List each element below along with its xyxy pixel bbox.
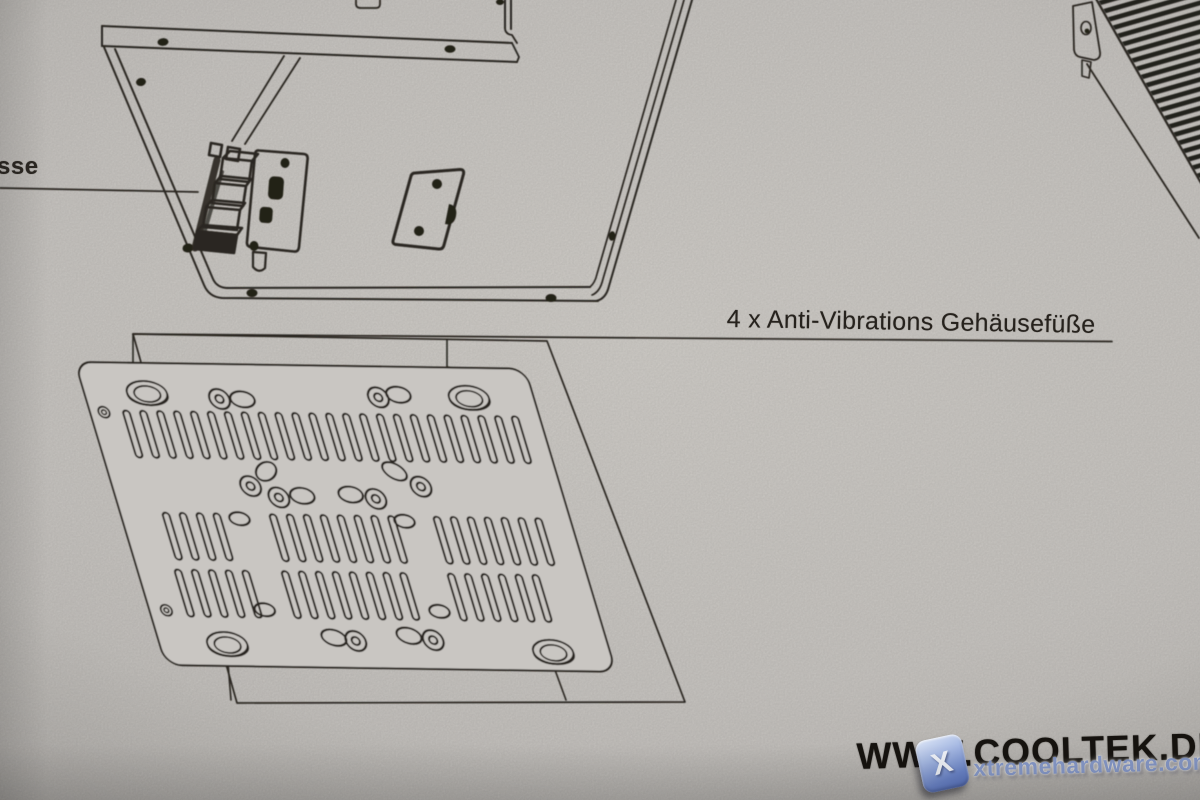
connector-label-partial: sse xyxy=(0,153,39,181)
instruction-diagram xyxy=(0,0,1200,800)
logo-x-glyph: X xyxy=(928,744,957,782)
feet-label: 4 x Anti-Vibrations Gehäusefüße xyxy=(727,305,1096,340)
hdmi-cutout xyxy=(268,176,285,200)
port-cutout xyxy=(259,207,273,224)
manual-photo-page: sse 4 x Anti-Vibrations Gehäusefüße WWW.… xyxy=(0,0,1200,800)
bottom-panel-plate xyxy=(75,362,616,672)
